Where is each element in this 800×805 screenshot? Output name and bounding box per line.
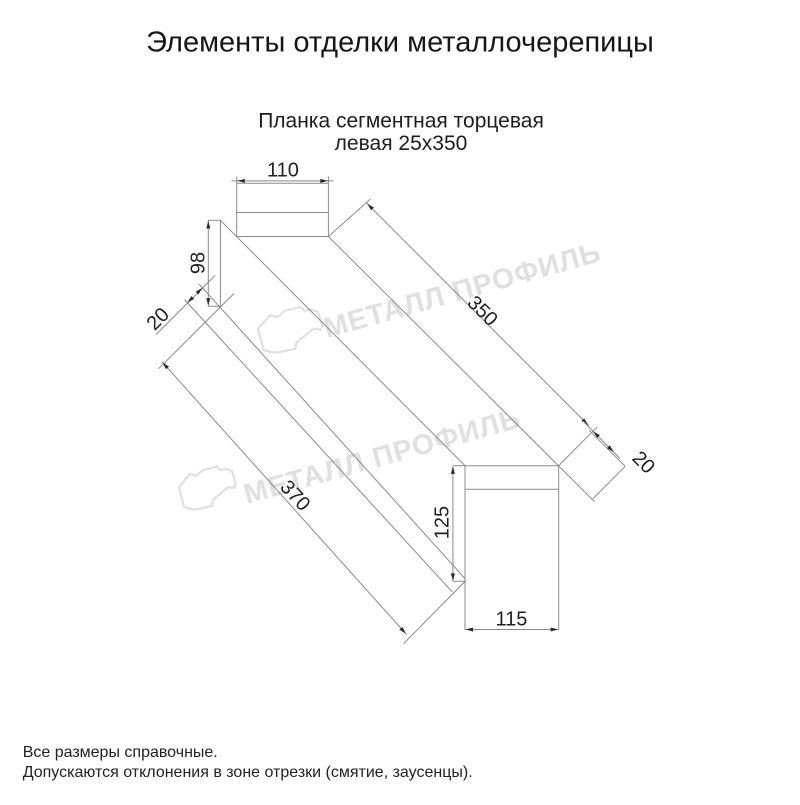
svg-text:Допускаются отклонения в зоне: Допускаются отклонения в зоне отрезки (с…	[23, 764, 473, 781]
svg-text:98: 98	[188, 252, 210, 274]
svg-text:левая 25х350: левая 25х350	[335, 132, 468, 155]
svg-text:Планка сегментная торцевая: Планка сегментная торцевая	[258, 110, 544, 133]
svg-text:Элементы отделки металлочерепи: Элементы отделки металлочерепицы	[146, 27, 654, 59]
svg-text:110: 110	[267, 159, 299, 181]
svg-text:115: 115	[496, 609, 528, 631]
svg-text:125: 125	[432, 506, 454, 539]
svg-text:Все размеры справочные.: Все размеры справочные.	[23, 744, 218, 761]
